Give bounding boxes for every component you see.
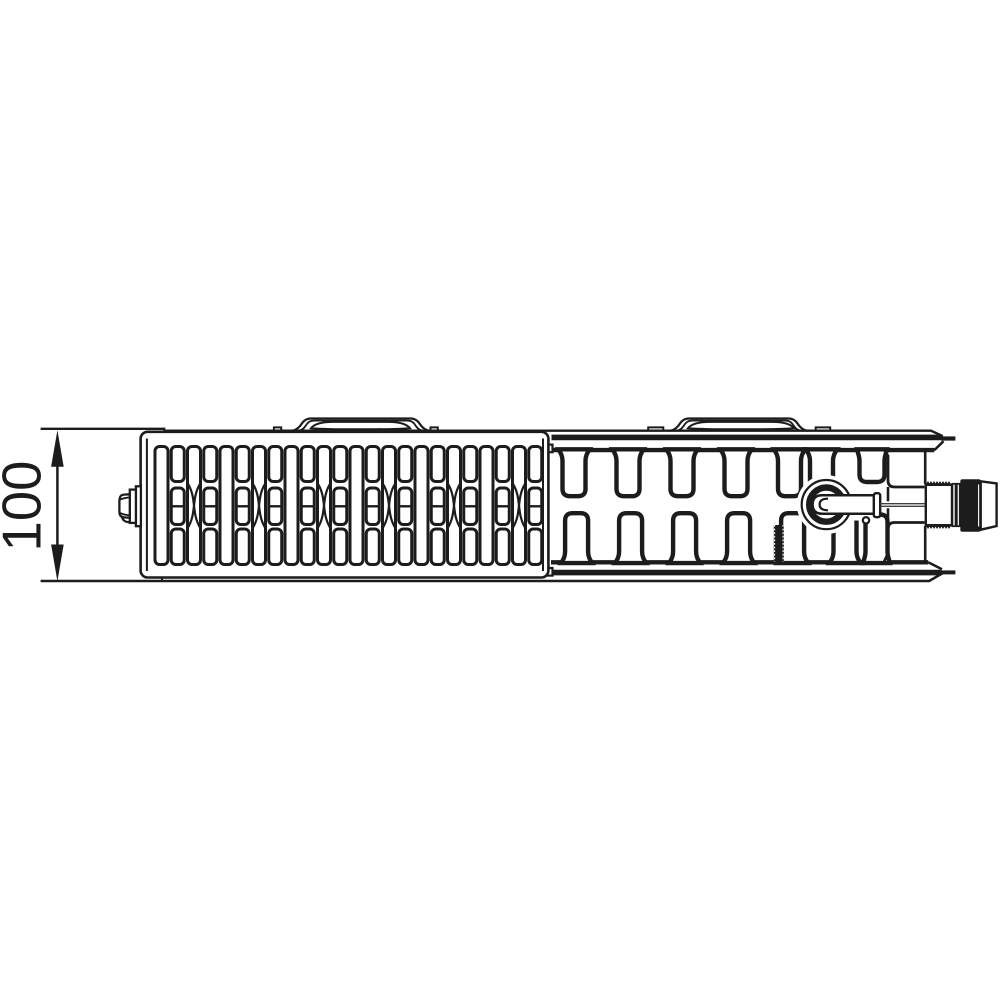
svg-text:100: 100	[0, 461, 52, 552]
